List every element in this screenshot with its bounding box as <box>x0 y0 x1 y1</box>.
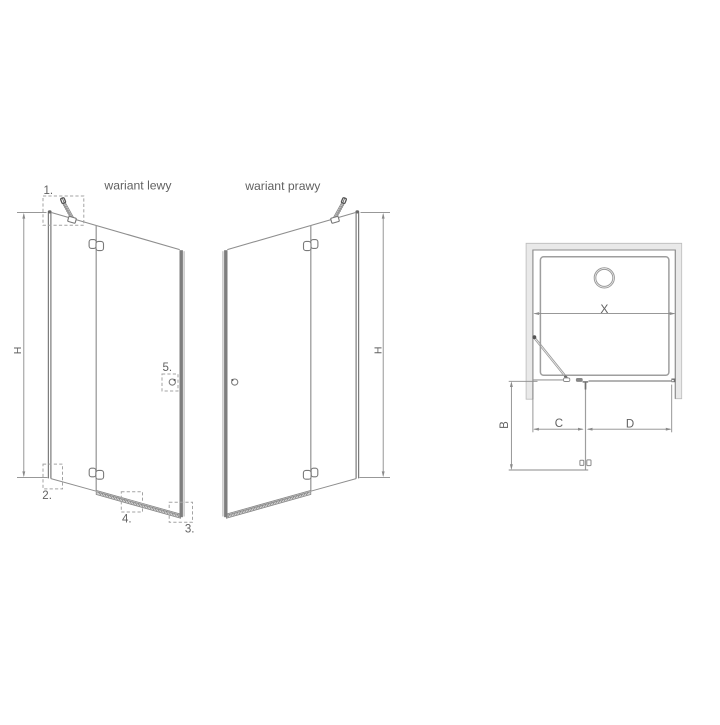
svg-text:wariant lewy: wariant lewy <box>103 179 172 193</box>
svg-text:4.: 4. <box>122 514 132 526</box>
svg-text:1.: 1. <box>44 185 54 197</box>
svg-text:3.: 3. <box>185 523 195 535</box>
svg-text:wariant prawy: wariant prawy <box>244 179 321 193</box>
svg-text:H: H <box>12 347 24 355</box>
svg-text:C: C <box>555 418 563 430</box>
svg-text:D: D <box>626 419 634 431</box>
svg-text:5.: 5. <box>163 362 173 374</box>
svg-text:H: H <box>372 347 384 355</box>
svg-text:X: X <box>600 302 608 316</box>
svg-text:B: B <box>499 421 511 429</box>
svg-text:2.: 2. <box>42 490 52 502</box>
